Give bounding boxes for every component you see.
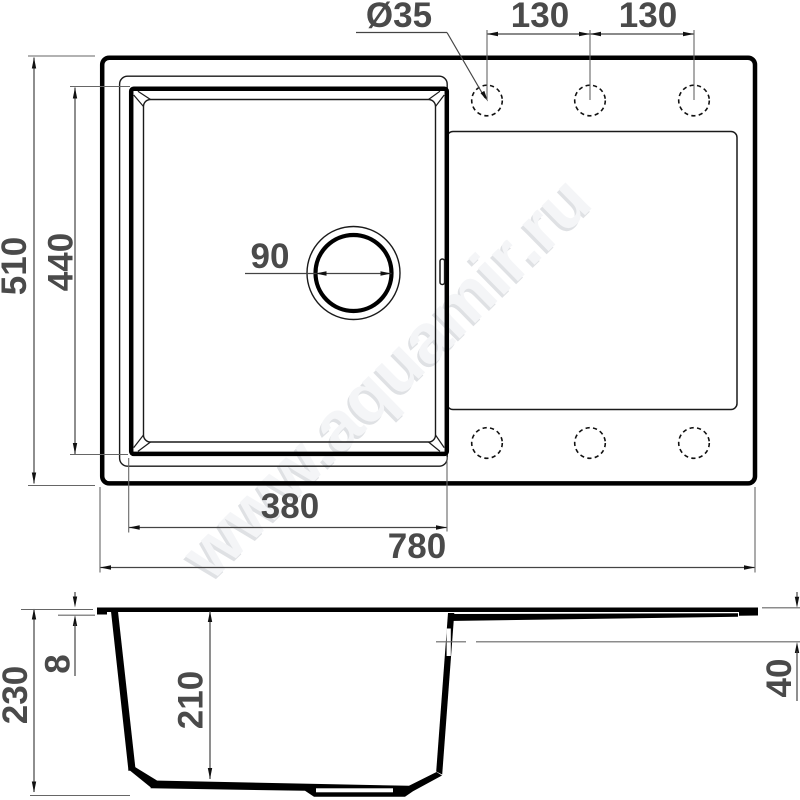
svg-text:130: 130 [619,0,677,35]
svg-text:510: 510 [0,237,34,295]
svg-text:780: 780 [388,527,446,566]
svg-text:230: 230 [0,666,35,724]
svg-text:90: 90 [251,237,290,276]
svg-text:130: 130 [511,0,569,35]
svg-text:Ø35: Ø35 [366,0,432,35]
svg-text:40: 40 [760,659,799,698]
svg-text:8: 8 [39,654,78,673]
svg-text:www.aquamir.ru: www.aquamir.ru [166,160,605,593]
svg-text:380: 380 [261,487,319,526]
svg-text:210: 210 [172,671,211,729]
